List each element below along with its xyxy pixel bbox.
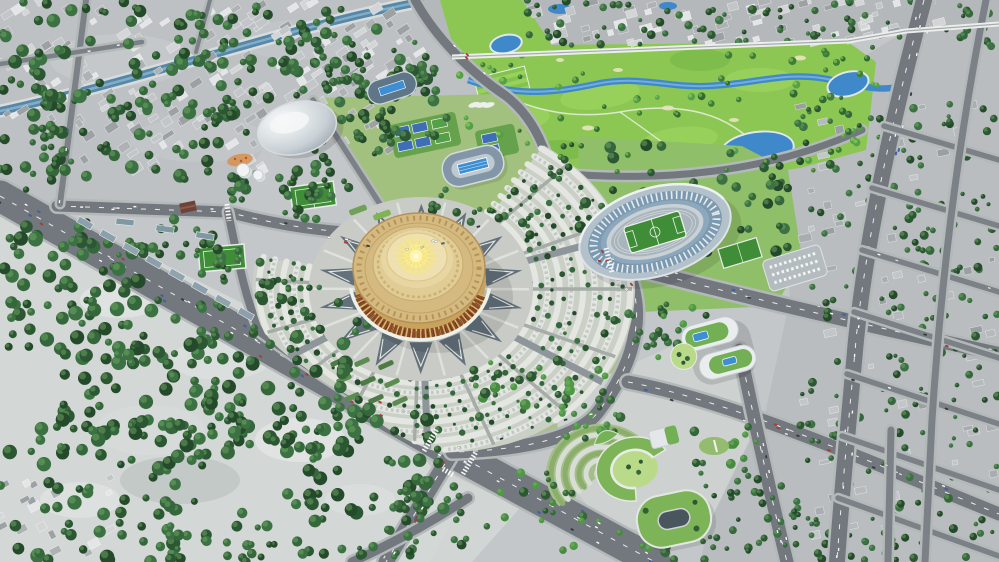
masterplan-svg: [0, 0, 999, 562]
masterplan-render: [0, 0, 999, 562]
monument-park: [699, 437, 729, 455]
